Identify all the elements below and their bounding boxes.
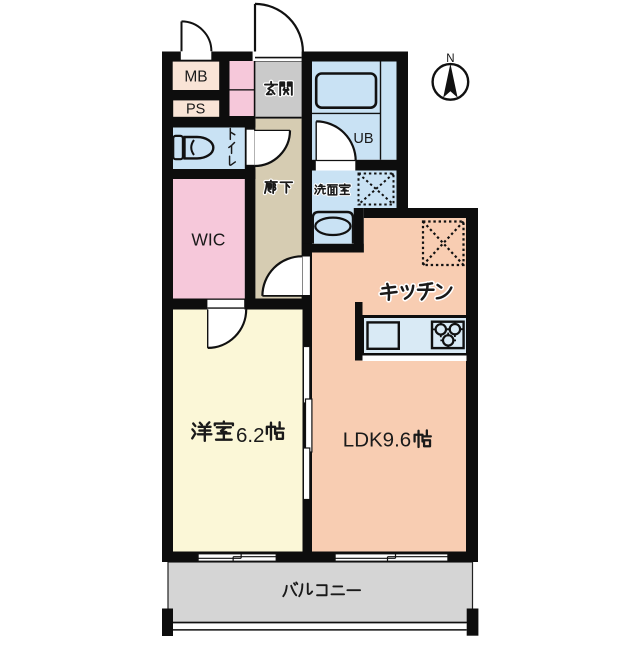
svg-text:LDK9.6: LDK9.6 bbox=[343, 428, 411, 451]
svg-text:WIC: WIC bbox=[191, 229, 225, 249]
svg-text:PS: PS bbox=[186, 101, 205, 117]
svg-text:MB: MB bbox=[184, 68, 207, 85]
svg-text:UB: UB bbox=[353, 131, 373, 147]
svg-text:6.2: 6.2 bbox=[236, 424, 265, 447]
svg-text:N: N bbox=[446, 53, 454, 65]
